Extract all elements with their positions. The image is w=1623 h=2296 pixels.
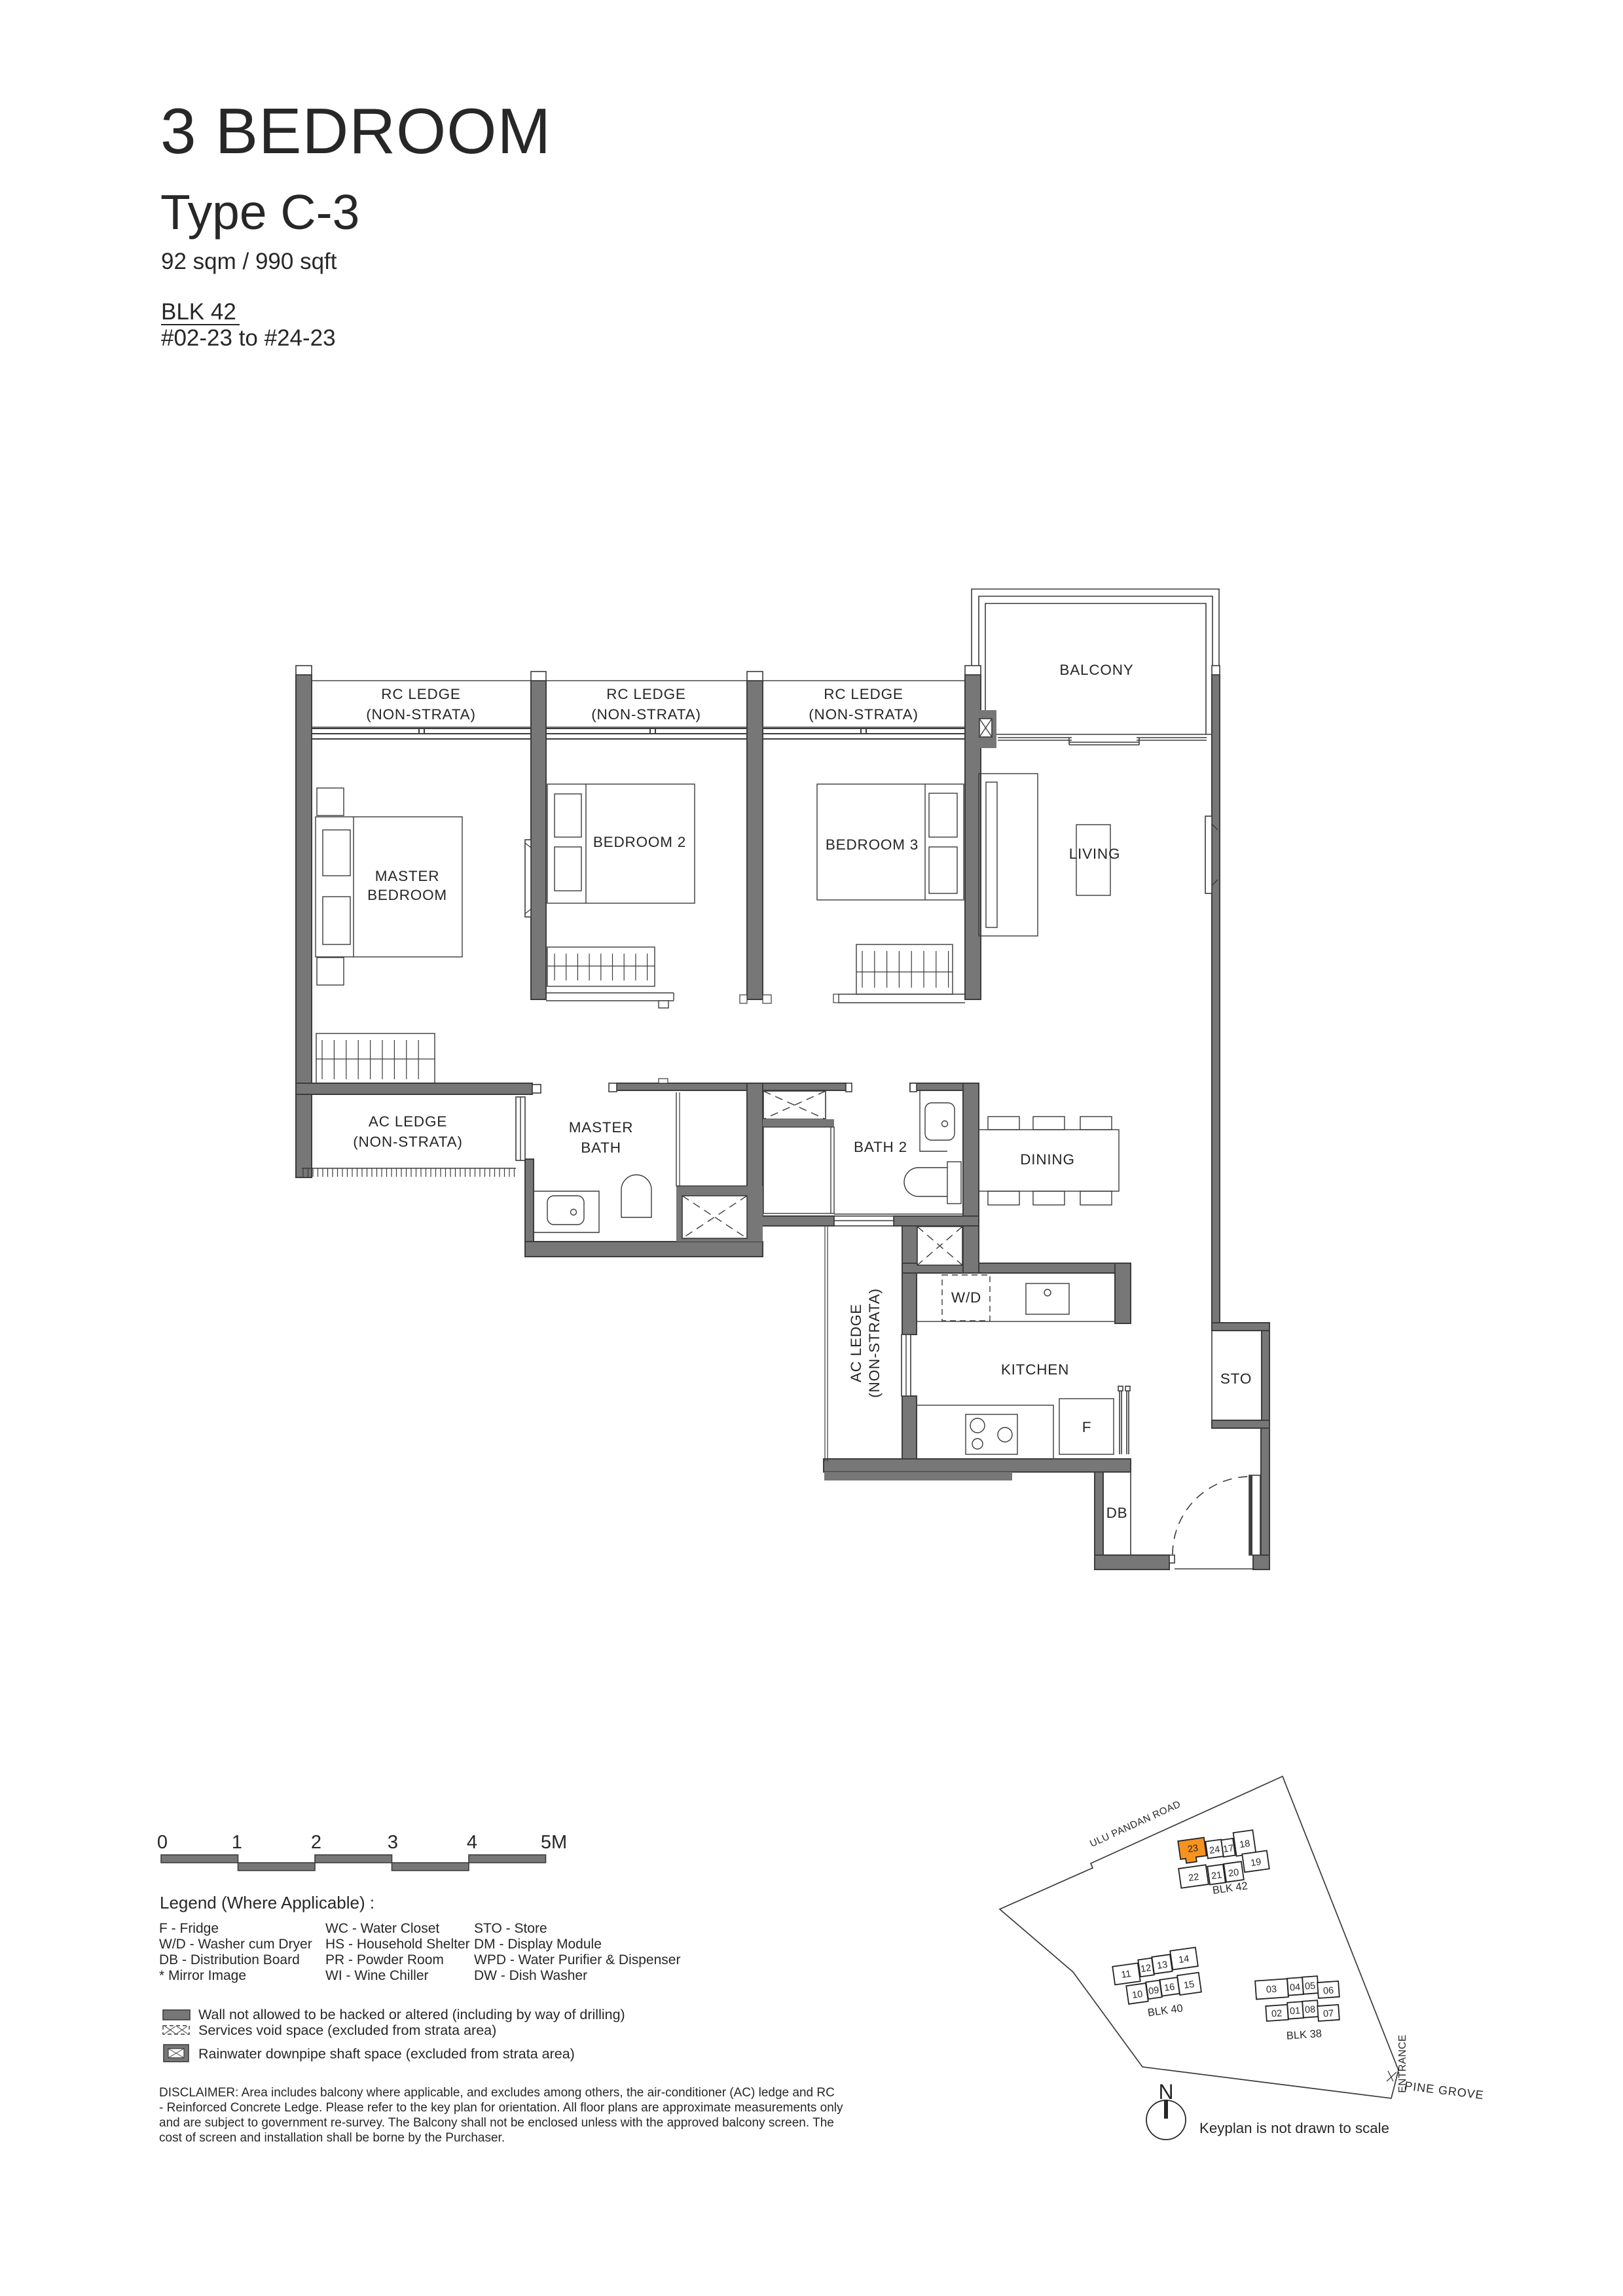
svg-text:1: 1 [232,1832,242,1853]
svg-text:12: 12 [1140,1963,1152,1975]
svg-text:AC LEDGE: AC LEDGE [369,1113,447,1130]
svg-text:17: 17 [1222,1843,1234,1855]
svg-text:23: 23 [1187,1843,1199,1855]
svg-text:01: 01 [1290,2005,1301,2017]
svg-text:3: 3 [388,1832,398,1853]
svg-text:06: 06 [1323,1985,1334,1996]
svg-text:2: 2 [311,1832,321,1853]
svg-text:#02-23 to #24-23: #02-23 to #24-23 [161,325,336,351]
svg-text:and are subject to government: and are subject to government re-survey.… [159,2116,834,2130]
svg-text:MASTER: MASTER [569,1119,634,1136]
svg-text:PR - Powder Room: PR - Powder Room [325,1952,444,1967]
svg-text:BEDROOM: BEDROOM [367,887,447,903]
svg-text:19: 19 [1250,1857,1262,1869]
svg-text:Keyplan is not drawn to scale: Keyplan is not drawn to scale [1199,2120,1389,2136]
svg-text:RC LEDGE: RC LEDGE [606,686,685,702]
svg-text:DB: DB [1106,1505,1128,1521]
svg-text:Wall not allowed to be hacked: Wall not allowed to be hacked or altered… [198,2007,625,2022]
svg-text:RC LEDGE: RC LEDGE [381,686,460,702]
svg-text:04: 04 [1290,1982,1301,1993]
svg-text:09: 09 [1148,1985,1159,1997]
svg-text:KITCHEN: KITCHEN [1001,1361,1069,1378]
svg-text:WC - Water Closet: WC - Water Closet [325,1921,439,1936]
svg-text:* Mirror Image: * Mirror Image [159,1968,246,1983]
svg-text:BEDROOM 2: BEDROOM 2 [593,834,686,850]
svg-text:92 sqm / 990 sqft: 92 sqm / 990 sqft [161,249,337,274]
svg-text:11: 11 [1121,1969,1132,1981]
svg-text:0: 0 [157,1832,168,1853]
svg-text:BEDROOM 3: BEDROOM 3 [826,836,919,853]
svg-text:BLK 38: BLK 38 [1286,2028,1322,2042]
svg-text:15: 15 [1183,1979,1195,1991]
svg-text:(NON-STRATA): (NON-STRATA) [366,706,476,723]
svg-text:10: 10 [1131,1989,1143,2001]
svg-text:W/D: W/D [951,1289,981,1306]
svg-text:02: 02 [1271,2008,1283,2019]
svg-text:HS - Household Shelter: HS - Household Shelter [325,1937,470,1952]
svg-text:AC LEDGE: AC LEDGE [848,1304,864,1382]
svg-text:STO: STO [1220,1371,1252,1387]
svg-text:03: 03 [1266,1984,1277,1995]
svg-text:20: 20 [1228,1867,1239,1879]
svg-text:Legend (Where Applicable) :: Legend (Where Applicable) : [160,1893,374,1912]
svg-text:STO - Store: STO - Store [474,1921,547,1936]
svg-text:ENTRANCE: ENTRANCE [1397,2034,1408,2092]
svg-text:RC LEDGE: RC LEDGE [824,686,903,702]
svg-text:13: 13 [1156,1960,1168,1971]
svg-text:LIVING: LIVING [1069,846,1121,862]
svg-text:(NON-STRATA): (NON-STRATA) [353,1134,463,1150]
svg-text:MASTER: MASTER [375,868,440,884]
svg-text:08: 08 [1305,2004,1316,2015]
svg-text:DM - Display Module: DM - Display Module [474,1937,602,1952]
svg-text:cost of screen and installatio: cost of screen and installation shall be… [159,2131,505,2145]
svg-text:DB - Distribution Board: DB - Distribution Board [159,1952,300,1967]
svg-text:BATH 2: BATH 2 [854,1139,907,1155]
svg-text:Rainwater downpipe shaft space: Rainwater downpipe shaft space (excluded… [198,2046,575,2062]
svg-text:5M: 5M [541,1832,567,1853]
svg-text:W/D - Washer cum Dryer: W/D - Washer cum Dryer [159,1937,312,1952]
svg-text:21: 21 [1211,1870,1222,1882]
svg-text:DW - Dish Washer: DW - Dish Washer [474,1968,587,1983]
svg-text:WPD - Water Purifier & Dispens: WPD - Water Purifier & Dispenser [474,1952,680,1967]
svg-text:(NON-STRATA): (NON-STRATA) [591,706,701,723]
svg-text:DINING: DINING [1020,1151,1075,1168]
svg-text:DISCLAIMER: Area includes balc: DISCLAIMER: Area includes balcony where … [159,2086,835,2100]
svg-text:BATH: BATH [581,1139,621,1156]
svg-text:22: 22 [1188,1872,1199,1884]
svg-text:14: 14 [1178,1954,1190,1965]
svg-text:F - Fridge: F - Fridge [159,1921,219,1936]
svg-text:Services void space (excluded: Services void space (excluded from strat… [198,2022,496,2038]
svg-text:4: 4 [467,1832,477,1853]
svg-text:(NON-STRATA): (NON-STRATA) [866,1288,883,1398]
svg-text:Type C-3: Type C-3 [160,185,359,240]
svg-text:- Reinforced Concrete Ledge. P: - Reinforced Concrete Ledge. Please refe… [159,2101,843,2115]
svg-text:BLK 42: BLK 42 [161,299,236,325]
svg-text:24: 24 [1209,1844,1220,1856]
svg-text:F: F [1082,1419,1092,1435]
svg-text:N: N [1158,2080,1173,2104]
svg-text:(NON-STRATA): (NON-STRATA) [809,706,919,723]
svg-text:07: 07 [1323,2008,1334,2019]
svg-text:BALCONY: BALCONY [1059,662,1133,678]
svg-text:05: 05 [1305,1981,1316,1992]
svg-text:WI - Wine Chiller: WI - Wine Chiller [325,1968,429,1983]
svg-text:18: 18 [1239,1839,1250,1850]
svg-text:16: 16 [1163,1982,1175,1994]
svg-text:3 BEDROOM: 3 BEDROOM [160,95,551,167]
